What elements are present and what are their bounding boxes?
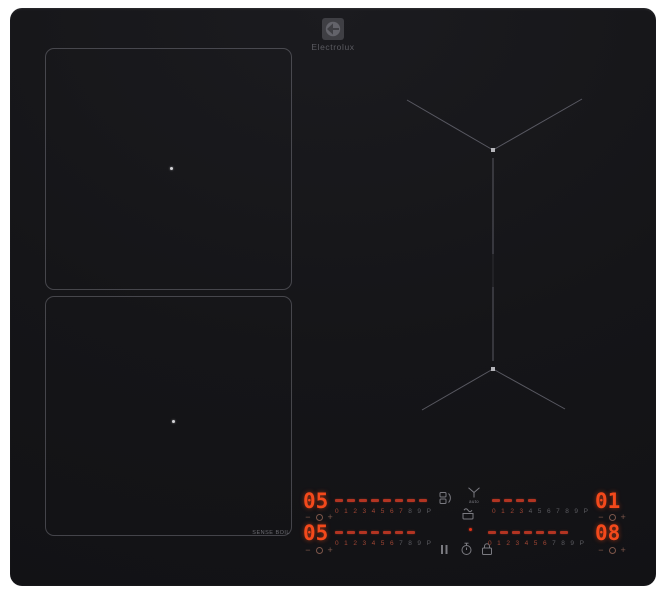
- slider-scale-label: 6: [543, 540, 547, 547]
- slider-dashes: [492, 499, 588, 502]
- timer-plus-button[interactable]: +: [621, 513, 626, 522]
- slider-scale-label: 2: [506, 540, 510, 547]
- electrolux-logo-icon: [322, 18, 344, 40]
- power-display-right-top: 01: [595, 490, 620, 512]
- slider-dash: [500, 531, 508, 534]
- brand-name: Electrolux: [303, 42, 363, 52]
- slider-scale: 0123456789P: [335, 540, 431, 547]
- slider-scale-label: 6: [390, 508, 394, 515]
- slider-scale-label: P: [427, 508, 431, 515]
- timer-plus-button[interactable]: +: [328, 546, 333, 555]
- slider-scale-label: 1: [344, 540, 348, 547]
- slider-dash: [395, 499, 403, 502]
- slider-scale-label: 7: [556, 508, 560, 515]
- power-slider-right-top[interactable]: 0123456789P: [492, 499, 588, 515]
- slider-scale-label: 9: [570, 540, 574, 547]
- slider-dash: [548, 531, 556, 534]
- slider-scale-label: 9: [574, 508, 578, 515]
- pan-detect-dot: [172, 420, 175, 423]
- slider-scale-label: 7: [552, 540, 556, 547]
- slider-dashes: [335, 499, 431, 502]
- slider-scale-label: P: [427, 540, 431, 547]
- power-display-left-top: 05: [303, 490, 328, 512]
- pause-icon: [440, 544, 449, 555]
- cooking-zone-left-bottom: [45, 296, 292, 536]
- power-display-right-bottom: 08: [595, 522, 620, 544]
- slider-dash: [371, 531, 379, 534]
- bridge-icon: [439, 491, 453, 505]
- slider-scale: 0123456789P: [488, 540, 584, 547]
- slider-scale-label: 1: [501, 508, 505, 515]
- timer-control-right-bottom[interactable]: − +: [593, 546, 631, 555]
- slider-dash: [335, 531, 343, 534]
- timer-plus-button[interactable]: +: [328, 513, 333, 522]
- slider-dash: [524, 531, 532, 534]
- slider-scale-label: 8: [565, 508, 569, 515]
- slider-scale-label: 5: [538, 508, 542, 515]
- pan-detect-dot: [170, 167, 173, 170]
- hob2hood-icon: [466, 487, 482, 498]
- slider-dash: [347, 499, 355, 502]
- slider-dashes: [488, 531, 584, 534]
- slider-scale-label: 0: [335, 540, 339, 547]
- slider-scale-label: P: [584, 508, 588, 515]
- timer-minus-button[interactable]: −: [305, 546, 310, 555]
- slider-scale-label: 3: [515, 540, 519, 547]
- slider-dash: [516, 499, 524, 502]
- slider-scale-label: 7: [399, 508, 403, 515]
- slider-dash: [512, 531, 520, 534]
- slider-dash: [504, 499, 512, 502]
- hob2hood-button[interactable]: auto: [465, 487, 483, 504]
- slider-dash: [347, 531, 355, 534]
- slider-dash: [407, 499, 415, 502]
- slider-scale-label: 8: [561, 540, 565, 547]
- cooking-zone-left-top: [45, 48, 292, 290]
- timer-clock-icon[interactable]: [316, 547, 323, 554]
- slider-dash: [335, 499, 343, 502]
- zone-center-dot: [491, 148, 495, 152]
- power-display-left-bottom: 05: [303, 522, 328, 544]
- slider-scale-label: 4: [525, 540, 529, 547]
- power-slider-left-top[interactable]: 0123456789P: [335, 499, 431, 515]
- slider-scale-label: 4: [372, 540, 376, 547]
- product-photo: Electrolux SENSE BOIL 05 −: [0, 0, 664, 594]
- slider-scale-label: 7: [399, 540, 403, 547]
- slider-scale: 0123456789P: [492, 508, 588, 515]
- power-slider-right-bottom[interactable]: 0123456789P: [488, 531, 584, 547]
- slider-dash: [560, 531, 568, 534]
- timer-clock-icon[interactable]: [316, 514, 323, 521]
- slider-scale-label: 9: [417, 508, 421, 515]
- slider-scale-label: 0: [492, 508, 496, 515]
- slider-dash: [371, 499, 379, 502]
- timer-button[interactable]: [460, 542, 473, 556]
- slider-dash: [359, 499, 367, 502]
- electrolux-logo: Electrolux: [303, 18, 363, 52]
- sense-boil-label: SENSE BOIL: [190, 530, 290, 536]
- slider-scale-label: 2: [353, 540, 357, 547]
- slider-scale-label: 5: [534, 540, 538, 547]
- timer-clock-icon[interactable]: [609, 547, 616, 554]
- slider-scale-label: 3: [519, 508, 523, 515]
- slider-scale-label: 2: [510, 508, 514, 515]
- stopwatch-icon: [460, 542, 473, 556]
- slider-scale-label: 5: [381, 540, 385, 547]
- slider-scale-label: 6: [547, 508, 551, 515]
- slider-scale-label: P: [580, 540, 584, 547]
- slider-scale-label: 3: [362, 540, 366, 547]
- slider-scale-label: 8: [408, 508, 412, 515]
- timer-minus-button[interactable]: −: [598, 546, 603, 555]
- timer-control-left-bottom[interactable]: − +: [300, 546, 338, 555]
- slider-scale-label: 6: [390, 540, 394, 547]
- slider-scale-label: 5: [381, 508, 385, 515]
- slider-dashes: [335, 531, 431, 534]
- slider-scale-label: 2: [353, 508, 357, 515]
- slider-scale-label: 9: [417, 540, 421, 547]
- sense-boil-button[interactable]: [459, 504, 477, 520]
- timer-clock-icon[interactable]: [609, 514, 616, 521]
- slider-scale-label: 4: [529, 508, 533, 515]
- slider-dash: [419, 499, 427, 502]
- induction-hob-surface: Electrolux SENSE BOIL 05 −: [10, 8, 656, 586]
- slider-dash: [488, 531, 496, 534]
- slider-scale-label: 8: [408, 540, 412, 547]
- slider-dash: [383, 531, 391, 534]
- slider-scale-label: 1: [497, 540, 501, 547]
- slider-scale-label: 0: [488, 540, 492, 547]
- slider-scale-label: 1: [344, 508, 348, 515]
- timer-plus-button[interactable]: +: [621, 546, 626, 555]
- power-slider-left-bottom[interactable]: 0123456789P: [335, 531, 431, 547]
- slider-dash: [492, 499, 500, 502]
- pause-button[interactable]: [440, 544, 449, 555]
- slider-dash: [536, 531, 544, 534]
- slider-scale-label: 0: [335, 508, 339, 515]
- power-indicator-dot: [469, 528, 472, 531]
- slider-dash: [407, 531, 415, 534]
- slider-scale-label: 4: [372, 508, 376, 515]
- slider-dash: [528, 499, 536, 502]
- sense-boil-pot-icon: [459, 504, 477, 520]
- zone-center-dot: [491, 367, 495, 371]
- slider-scale-label: 3: [362, 508, 366, 515]
- bridge-button[interactable]: [439, 491, 453, 505]
- slider-dash: [395, 531, 403, 534]
- slider-dash: [383, 499, 391, 502]
- slider-dash: [359, 531, 367, 534]
- slider-scale: 0123456789P: [335, 508, 431, 515]
